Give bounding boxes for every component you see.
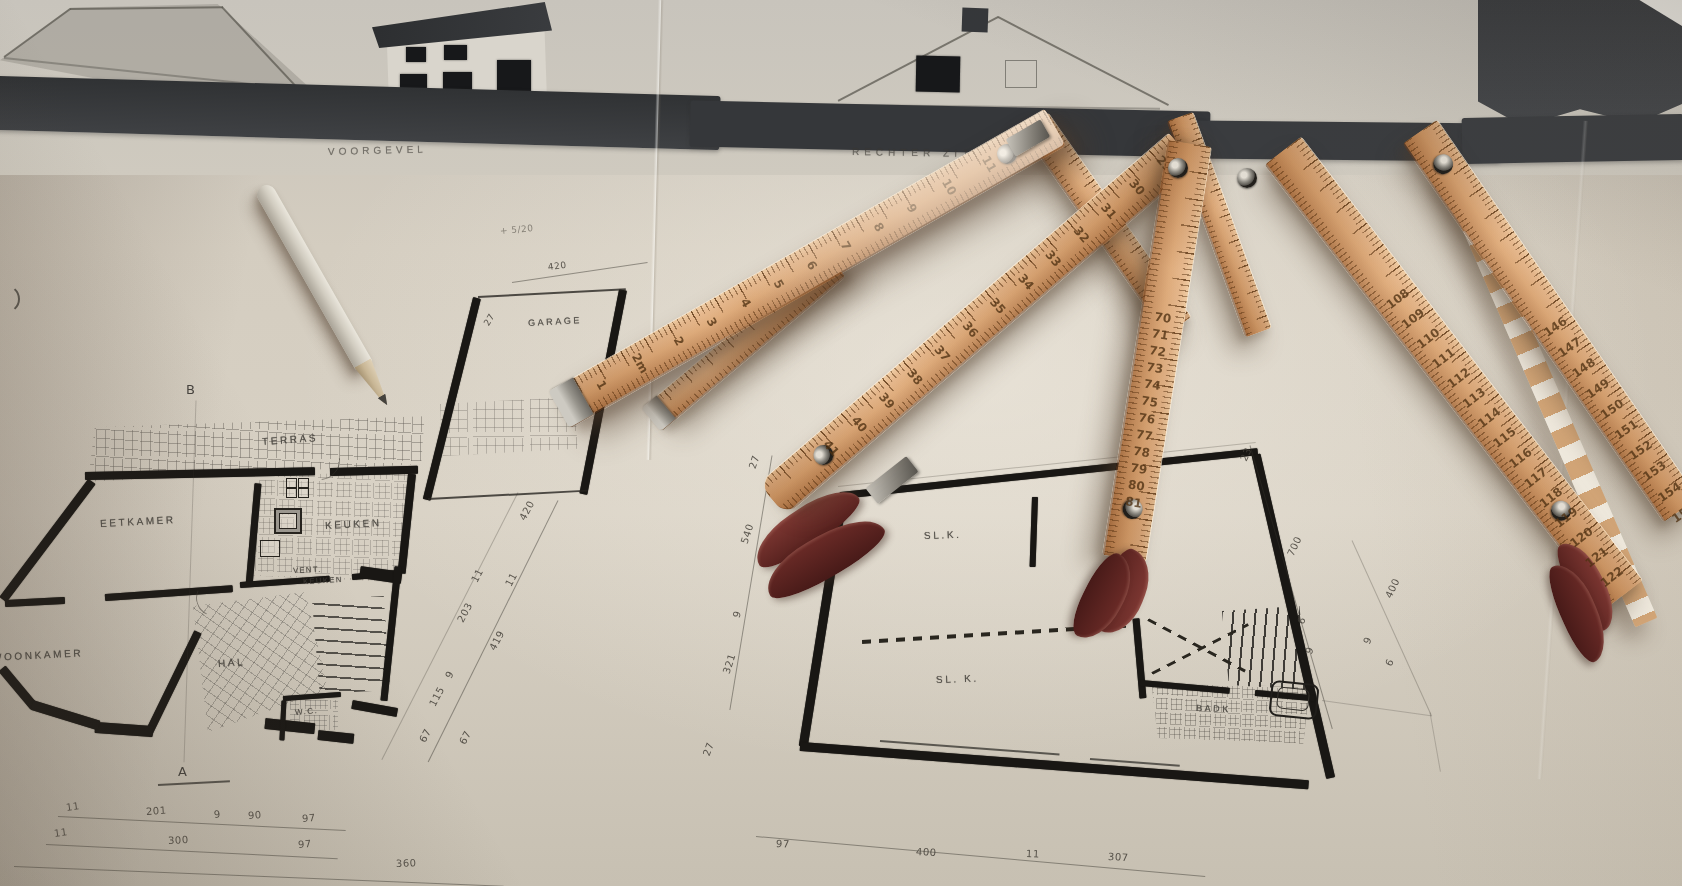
ruler-number: 35 [987, 295, 1008, 317]
dimension-line [14, 866, 504, 886]
ruler-number: 70 [1154, 310, 1173, 326]
dimension-number: 67 [457, 729, 473, 746]
ruler-number: 32 [1070, 224, 1091, 246]
ruler-rivet [1237, 168, 1257, 188]
dimension-number: 11 [503, 571, 519, 588]
ruler-number: 108 [1384, 286, 1412, 312]
ruler-number: 38 [904, 366, 925, 388]
ruler-number: 71 [1151, 326, 1170, 342]
scale-note: + 5/20 [500, 223, 534, 236]
ruler-number: 81 [1124, 494, 1143, 510]
ruler-number: 30 [1126, 176, 1147, 198]
dimension-number: 115 [427, 685, 446, 708]
ruler-number: 110 [1414, 325, 1442, 351]
dimension-number: 9 [213, 808, 221, 820]
wall [1030, 497, 1038, 567]
room-label-woonkamer: WOONKAMER [0, 647, 83, 663]
wall [279, 700, 286, 740]
ruler-number: 9 [904, 201, 920, 215]
ruler-number: 6 [804, 258, 820, 272]
ruler-number: 1 [593, 378, 609, 392]
dimension-number: 9 [731, 609, 744, 619]
room-label-slk-bottom: SL. K. [936, 673, 979, 685]
dimension-number: 201 [146, 805, 167, 817]
dimension-line [46, 844, 338, 859]
ruler-number: 8 [871, 220, 887, 234]
dimension-number: 67 [417, 727, 433, 744]
room-label-garage: GARAGE [528, 315, 583, 328]
stairs-left-plan [312, 596, 390, 694]
dimension-number: 6 [1383, 657, 1396, 668]
ruler-number: 78 [1132, 444, 1151, 460]
ruler-number: 146 [1541, 314, 1570, 340]
ruler-number: 109 [1399, 305, 1427, 331]
ruler-number: 7 [837, 239, 853, 253]
ruler-number: 75 [1140, 394, 1159, 410]
ruler-number: 37 [932, 342, 953, 364]
dimension-line [1352, 540, 1433, 716]
dimension-number: 97 [298, 838, 312, 850]
section-marker-b: B [186, 382, 195, 397]
dimension-line [756, 836, 1205, 877]
wall [5, 597, 65, 607]
room-label-slk-top: SL.K. [924, 529, 962, 541]
ruler-number: 74 [1143, 377, 1162, 393]
garage-wall-bottom [428, 490, 588, 500]
ruler-number: 153 [1641, 458, 1670, 484]
section-marker-a: A [178, 764, 187, 779]
dimension-number: 360 [396, 857, 417, 869]
ruler-number: 39 [876, 390, 897, 412]
hob-square [298, 478, 309, 488]
garage-wall-left [423, 297, 481, 501]
wall [351, 700, 398, 717]
hob-square [298, 488, 309, 498]
dimension-number: 27 [482, 312, 497, 328]
ruler-number: 154 [1655, 479, 1682, 505]
bathtub-inner [1276, 686, 1310, 711]
dimension-number: 700 [1285, 535, 1304, 558]
wall [800, 742, 1309, 789]
annex-line [1430, 712, 1441, 771]
ruler-number: 40 [848, 414, 869, 436]
dimension-number: 400 [1383, 577, 1402, 600]
dimension-number: 540 [739, 522, 756, 545]
dimension-number: 203 [455, 601, 474, 624]
wall [95, 722, 154, 737]
sink [274, 508, 302, 534]
annex-line [1322, 700, 1431, 716]
ruler-number: 150 [1598, 396, 1627, 422]
dimension-number: 97 [302, 812, 316, 824]
ruler-rivet [1168, 158, 1188, 178]
wall [317, 730, 354, 744]
room-label-badk: BADK [1196, 703, 1231, 714]
dimension-number: 420 [547, 260, 567, 272]
dimension-number: 90 [248, 809, 262, 821]
ruler-number: 147 [1555, 334, 1584, 360]
ruler-number: 36 [959, 319, 980, 341]
ruler-number: 10 [939, 176, 959, 197]
marker-underline [158, 780, 230, 785]
cupboard [260, 540, 280, 557]
ruler-number: 151 [1612, 417, 1641, 443]
ruler-number: 117 [1521, 464, 1549, 490]
bathtub [1268, 680, 1320, 721]
blueprint-photo: VOORGEVEL RECHTER ZIJGEVEL + 5/20 [0, 0, 1682, 886]
ruler-number: 112 [1445, 365, 1473, 391]
hob-square [286, 488, 297, 498]
room-label-vent-keuken: KEUKEN [303, 575, 343, 586]
ruler-number: 11 [979, 153, 999, 174]
ruler-number: 3 [704, 315, 720, 329]
ruler-number: 115 [1491, 425, 1519, 451]
ruler-number: 5 [771, 277, 787, 291]
dimension-number: 419 [487, 629, 506, 652]
dimension-line [512, 262, 648, 283]
wall [144, 630, 202, 737]
compass-arc-mark [0, 284, 20, 314]
ruler-number: 2 [671, 334, 687, 348]
ruler-number: 72 [1148, 343, 1167, 359]
dimension-number: 300 [168, 834, 189, 846]
dimension-number: 420 [517, 499, 536, 522]
dimension-number: 9 [443, 669, 456, 680]
dimension-number: 11 [1026, 848, 1040, 860]
ruler-number: 2m [629, 351, 651, 376]
ruler-number: 31 [1098, 200, 1119, 222]
ruler-number: 4 [737, 296, 753, 310]
hob-square [286, 478, 297, 488]
dimension-number: 23 [1238, 446, 1254, 463]
ruler-number: 80 [1127, 478, 1146, 494]
dimension-number: 9 [1361, 635, 1374, 646]
ruler-number: 73 [1146, 360, 1165, 376]
ruler-number: 116 [1506, 444, 1534, 470]
ruler-number: 79 [1130, 461, 1149, 477]
ruler-number: 111 [1429, 345, 1457, 371]
wall [0, 479, 96, 603]
dimension-number: 400 [916, 846, 937, 858]
ruler-number: 77 [1135, 427, 1154, 443]
ruler-number: 34 [1015, 271, 1036, 293]
ruler-number: 148 [1569, 355, 1598, 381]
ruler-number: 33 [1043, 248, 1064, 270]
dimension-number: 11 [53, 826, 68, 839]
dimension-number: 307 [1108, 851, 1129, 863]
ruler-number: 113 [1460, 385, 1488, 411]
dimension-number: 27 [747, 454, 762, 470]
dimension-number: 97 [776, 838, 790, 850]
dimension-number: 11 [65, 800, 80, 813]
ruler-number: 76 [1138, 410, 1157, 426]
ruler-number: 114 [1475, 405, 1503, 431]
garage-wall-top [478, 288, 626, 298]
wall [31, 700, 101, 730]
ruler-number: 149 [1584, 376, 1613, 402]
dimension-number: 27 [701, 741, 716, 758]
ruler-number: 152 [1626, 438, 1655, 464]
room-label-hal: HAL [218, 656, 246, 669]
room-label-vent: VENT. [293, 565, 322, 575]
room-label-eetkamer: EETKAMER [100, 514, 176, 529]
